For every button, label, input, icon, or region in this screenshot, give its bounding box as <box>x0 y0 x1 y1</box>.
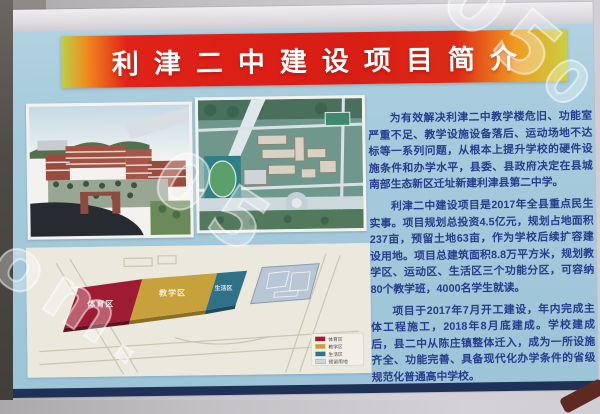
zone-teaching-label: 教学区 <box>158 288 186 298</box>
rendering-aerial-art <box>198 98 364 230</box>
board-bottom-frame <box>11 381 598 398</box>
billboard-panel: 利津二中建设项目简介 <box>6 2 598 398</box>
zone-sports-label: 体育区 <box>87 299 114 309</box>
rendering-perspective-art <box>29 104 191 236</box>
legend-swatch-reserved <box>315 359 325 364</box>
paragraph-schedule: 项目于2017年7月开工建设，年内完成主体工程施工，2018年8月底建成。学校建… <box>371 300 596 386</box>
title-banner: 利津二中建设项目简介 <box>61 29 568 88</box>
rendering-aerial-image <box>195 95 367 233</box>
legend-swatch-living <box>315 352 325 357</box>
zone-living-label: 生活区 <box>214 284 232 292</box>
site-plan-image: 体育区 教学区 生活区 体育区 教学区 生活区 预留用地 <box>26 243 372 378</box>
site-plan-art: 体育区 教学区 生活区 体育区 教学区 生活区 预留用地 <box>26 243 372 378</box>
paragraph-background: 为有效解决利津二中教学楼危旧、功能室严重不足、教学设施设备落后、运动场地不达标等… <box>368 108 593 194</box>
left-edge-pole <box>0 0 13 400</box>
body-text-column: 为有效解决利津二中教学楼危旧、功能室严重不足、教学设施设备落后、运动场地不达标等… <box>368 108 596 392</box>
site-plan-legend: 体育区 教学区 生活区 预留用地 <box>311 333 363 366</box>
legend-swatch-sports <box>315 337 325 342</box>
board-top-edge <box>6 2 593 32</box>
legend-swatch-teaching <box>315 344 325 349</box>
board-content: 体育区 教学区 生活区 体育区 教学区 生活区 预留用地 <box>7 90 594 98</box>
paragraph-project-scope: 利津二中建设项目是2017年全县重点民生实事。项目规划总投资4.5亿元，规划占地… <box>369 196 594 299</box>
page-title: 利津二中建设项目简介 <box>97 36 533 81</box>
rendering-perspective-image <box>26 101 194 239</box>
